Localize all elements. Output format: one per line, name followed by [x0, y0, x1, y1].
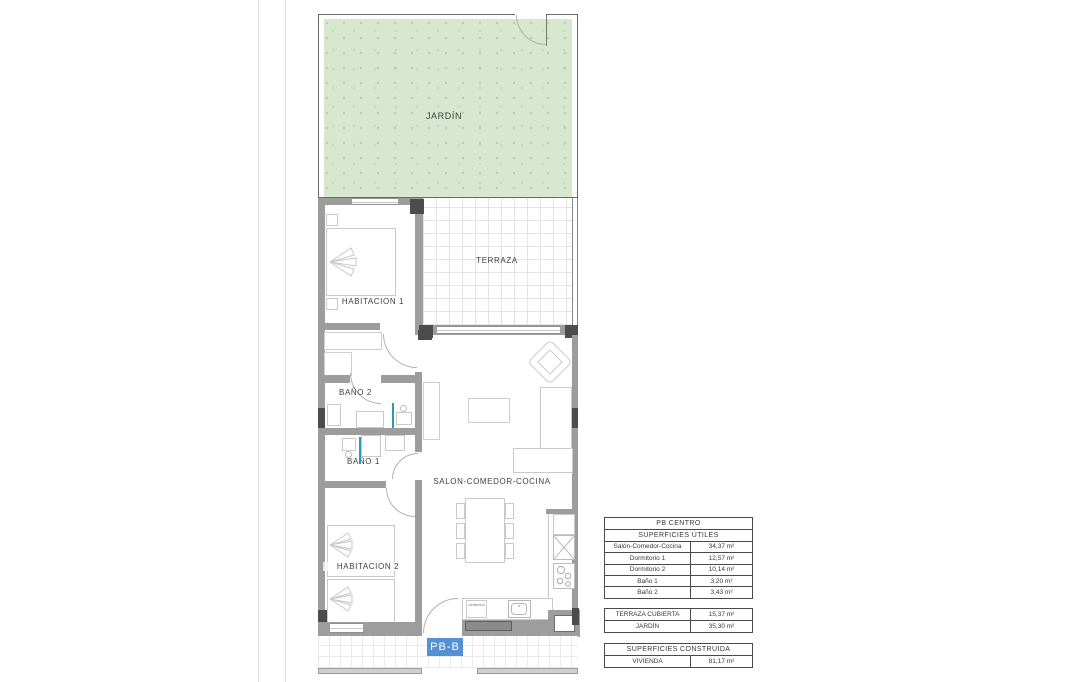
pillar	[410, 199, 424, 214]
hall-wardrobe	[324, 352, 352, 376]
pillar	[318, 408, 325, 428]
door-arc	[383, 334, 417, 368]
page-edge-line	[258, 0, 259, 682]
garden-gate-leaf	[546, 15, 547, 46]
chair	[456, 523, 465, 539]
shower-screen	[359, 437, 361, 464]
front-fence	[477, 668, 578, 674]
chair	[505, 543, 514, 559]
table-title: PB CENTRO	[605, 520, 752, 527]
sofa-chaise	[513, 448, 573, 473]
row-label: TERRAZA CUBIERTA	[605, 609, 691, 620]
table-row: SUPERFICIES ÚTILES	[605, 529, 752, 540]
cooktop	[553, 563, 575, 589]
fridge-unit	[553, 535, 575, 560]
row-label: Salón-Comedor-Cocina	[605, 542, 691, 552]
dishwasher-label: cerámica	[466, 603, 487, 607]
toilet-bowl	[400, 405, 407, 412]
pillar	[418, 330, 432, 340]
toilet-bowl	[345, 451, 352, 458]
sofa	[540, 387, 572, 450]
chair	[505, 503, 514, 519]
wall-segment	[318, 323, 380, 330]
row-value: 12,57 m²	[691, 555, 752, 562]
table-row: Salón-Comedor-Cocina 34,37 m²	[605, 541, 752, 552]
floorplan: JARDÍN TERRAZA HABITACION 1	[318, 14, 578, 674]
kitchen-cabinet	[553, 514, 575, 535]
shower-tray	[356, 411, 384, 428]
row-label: JARDÍN	[605, 621, 691, 631]
row-value: 3,20 m²	[691, 578, 752, 585]
unit-badge: PB-B	[427, 638, 463, 656]
wall-segment	[318, 375, 350, 383]
floorplan-canvas: JARDÍN TERRAZA HABITACION 1	[0, 0, 1070, 682]
front-fence	[318, 668, 422, 674]
living-room-window	[437, 326, 560, 334]
table-row: VIVIENDA 81,17 m²	[605, 655, 752, 666]
chair	[456, 543, 465, 559]
washbasin	[385, 435, 405, 451]
kitchen-counter-edge	[548, 512, 549, 612]
table-row: TERRAZA CUBIERTA 15,37 m²	[605, 609, 752, 620]
row-value: 3,43 m²	[691, 589, 752, 596]
kitchen-window	[465, 621, 512, 631]
row-label: Dormitorio 2	[605, 565, 691, 575]
coffee-table	[468, 398, 510, 423]
terrace-label: TERRAZA	[447, 256, 547, 265]
bedroom1-label: HABITACION 1	[328, 297, 418, 306]
terrace-right-fence	[572, 198, 578, 325]
chair	[505, 523, 514, 539]
exterior-areas-table: TERRAZA CUBIERTA 15,37 m² JARDÍN 35,30 m…	[604, 608, 753, 633]
table-subtitle: SUPERFICIES ÚTILES	[605, 532, 752, 539]
closet	[423, 382, 440, 440]
wall-segment	[318, 428, 422, 435]
row-label: Baño 2	[605, 587, 691, 597]
built-area-table: SUPERFICIES CONSTRUIDA VIVIENDA 81,17 m²	[604, 643, 753, 668]
kitchen-sink	[508, 600, 531, 618]
table-row: Dormitorio 2 10,14 m²	[605, 564, 752, 575]
garden-lawn	[324, 19, 572, 197]
dining-table	[465, 498, 505, 563]
row-label: VIVIENDA	[605, 656, 691, 666]
shower-screen	[392, 403, 394, 429]
nightstand	[326, 214, 338, 226]
door-arc	[386, 488, 415, 517]
table-row: Baño 1 3,20 m²	[605, 575, 752, 586]
bedroom2-south-window	[330, 623, 363, 633]
pillar	[572, 608, 579, 625]
table-title: SUPERFICIES CONSTRUIDA	[605, 646, 752, 653]
pillar	[571, 408, 578, 428]
shower-tray	[361, 435, 381, 457]
bedroom1-north-window	[352, 198, 398, 205]
row-value: 15,37 m²	[691, 611, 752, 618]
wall-segment	[415, 372, 422, 452]
row-label: Baño 1	[605, 576, 691, 586]
toilet	[342, 438, 356, 451]
garden-label: JARDÍN	[394, 111, 494, 121]
row-value: 10,14 m²	[691, 566, 752, 573]
bath2-label: BAÑO 2	[318, 388, 393, 397]
bedroom2-label: HABITACION 2	[323, 562, 413, 571]
washbasin	[327, 404, 341, 426]
bath1-label: BAÑO 1	[326, 457, 401, 466]
table-row: SUPERFICIES CONSTRUIDA	[605, 644, 752, 655]
row-value: 81,17 m²	[691, 658, 752, 665]
table-row: JARDÍN 35,30 m²	[605, 620, 752, 631]
wall-segment	[415, 488, 422, 630]
row-value: 35,30 m²	[691, 623, 752, 630]
bed-fan-decor	[329, 531, 355, 559]
chair	[456, 503, 465, 519]
hall-wardrobe	[324, 332, 382, 350]
toilet	[396, 412, 412, 425]
table-row: Dormitorio 1 12,57 m²	[605, 552, 752, 563]
living-room-label: SALON-COMEDOR-COCINA	[412, 477, 572, 486]
entrance-door-arc	[423, 598, 458, 633]
row-label: Dormitorio 1	[605, 553, 691, 563]
wall-segment	[415, 198, 423, 335]
table-row: PB CENTRO	[605, 518, 752, 529]
wall-segment	[318, 481, 386, 488]
row-value: 34,37 m²	[691, 543, 752, 550]
bed-fan-decor	[329, 585, 355, 613]
bed-fan-decor	[329, 246, 359, 278]
table-row: Baño 2 3,43 m²	[605, 586, 752, 597]
page-edge-line	[285, 0, 286, 682]
areas-table: PB CENTRO SUPERFICIES ÚTILES Salón-Comed…	[604, 517, 753, 599]
